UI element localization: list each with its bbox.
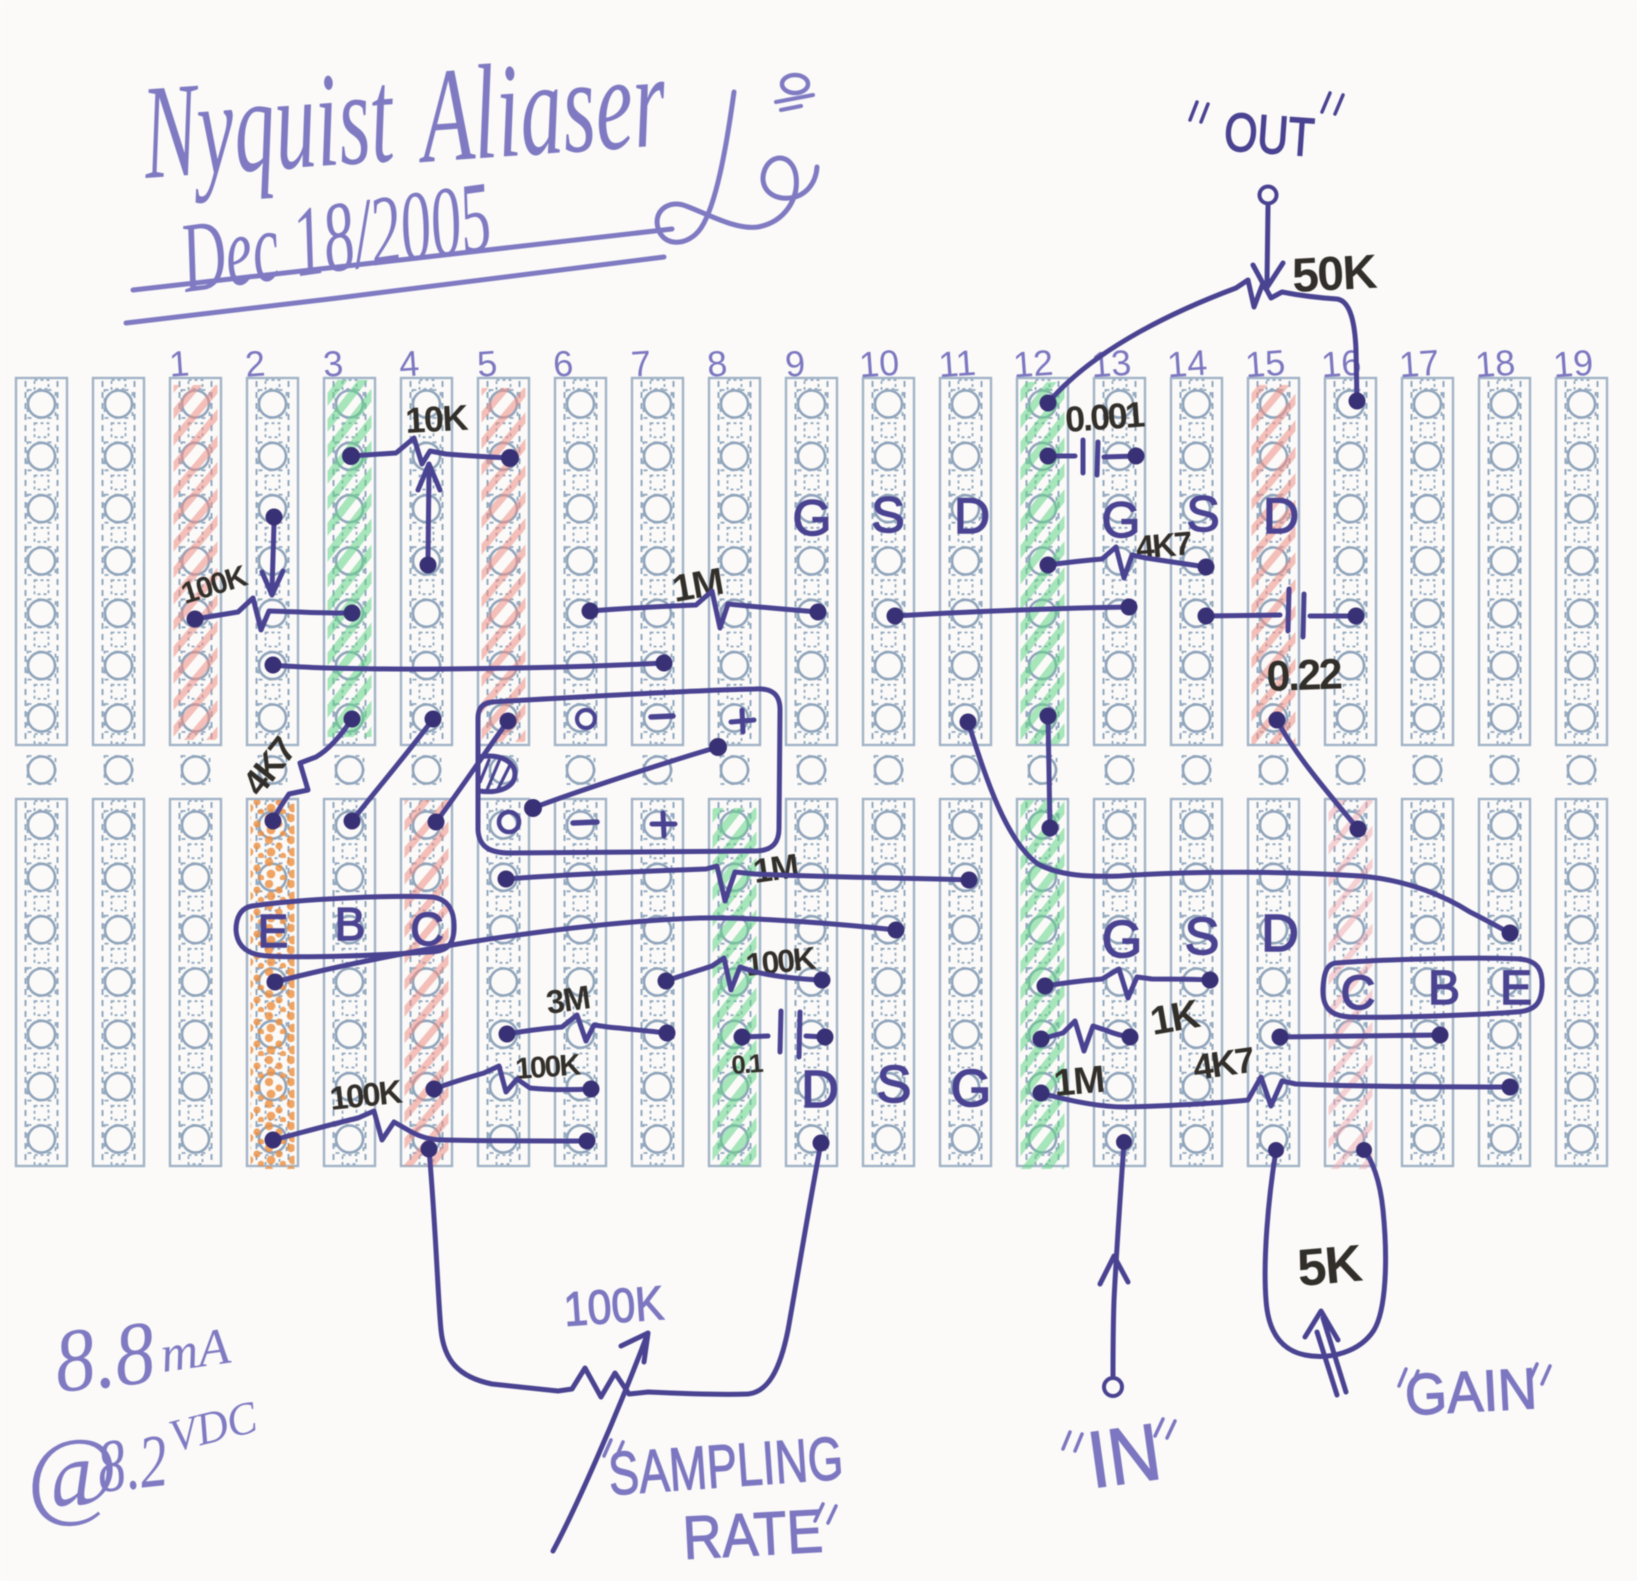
svg-text:5: 5 <box>476 342 499 384</box>
svg-text:11: 11 <box>937 342 977 386</box>
svg-text:IN: IN <box>1082 1407 1166 1505</box>
svg-text:OUT: OUT <box>1222 102 1316 168</box>
svg-text:B: B <box>1428 962 1460 1015</box>
svg-text:B: B <box>335 898 366 950</box>
svg-text:RATE: RATE <box>681 1497 824 1572</box>
svg-text:10: 10 <box>858 342 901 386</box>
svg-text:GAIN: GAIN <box>1403 1356 1538 1428</box>
svg-text:S: S <box>877 1056 912 1114</box>
svg-text:1: 1 <box>168 342 191 384</box>
svg-text:19: 19 <box>1552 342 1595 386</box>
svg-text:100K: 100K <box>514 1048 582 1086</box>
svg-text:D: D <box>1263 488 1299 544</box>
svg-text:10K: 10K <box>404 397 469 441</box>
svg-text:D: D <box>1261 905 1299 963</box>
svg-text:1M: 1M <box>751 847 800 891</box>
svg-text:2: 2 <box>244 342 267 384</box>
svg-text:S: S <box>871 487 904 543</box>
svg-text:S: S <box>1185 908 1220 966</box>
svg-text:17: 17 <box>1398 342 1441 386</box>
svg-text:0.001: 0.001 <box>1064 393 1147 439</box>
svg-text:9: 9 <box>784 342 807 384</box>
svg-text:7: 7 <box>630 342 653 384</box>
svg-text:0.22: 0.22 <box>1266 650 1343 701</box>
svg-text:8.2: 8.2 <box>93 1419 171 1509</box>
svg-text:15: 15 <box>1244 342 1287 386</box>
svg-text:E: E <box>1500 962 1532 1015</box>
svg-text:mA: mA <box>157 1318 234 1384</box>
svg-text:G: G <box>793 490 832 546</box>
svg-text:6: 6 <box>552 342 575 384</box>
svg-text:100K: 100K <box>562 1277 665 1337</box>
svg-text:1K: 1K <box>1147 992 1204 1044</box>
svg-text:100K: 100K <box>328 1073 405 1117</box>
svg-text:4K7: 4K7 <box>1190 1039 1256 1088</box>
svg-text:D: D <box>954 488 990 544</box>
svg-text:0.1: 0.1 <box>730 1048 764 1080</box>
svg-text:3: 3 <box>322 342 345 384</box>
svg-text:3M: 3M <box>544 978 592 1021</box>
svg-text:8: 8 <box>706 342 729 384</box>
svg-text:4: 4 <box>398 342 421 384</box>
svg-text:G: G <box>1102 911 1142 969</box>
svg-text:C: C <box>1341 967 1376 1020</box>
svg-text:14: 14 <box>1166 342 1209 386</box>
svg-text:G: G <box>951 1060 991 1118</box>
svg-text:S: S <box>1186 486 1219 542</box>
svg-text:12: 12 <box>1012 342 1055 386</box>
svg-text:8.8: 8.8 <box>50 1303 160 1412</box>
svg-text:D: D <box>801 1061 839 1119</box>
svg-text:5K: 5K <box>1295 1234 1365 1297</box>
svg-text:E: E <box>258 905 289 957</box>
svg-text:18: 18 <box>1474 342 1517 386</box>
